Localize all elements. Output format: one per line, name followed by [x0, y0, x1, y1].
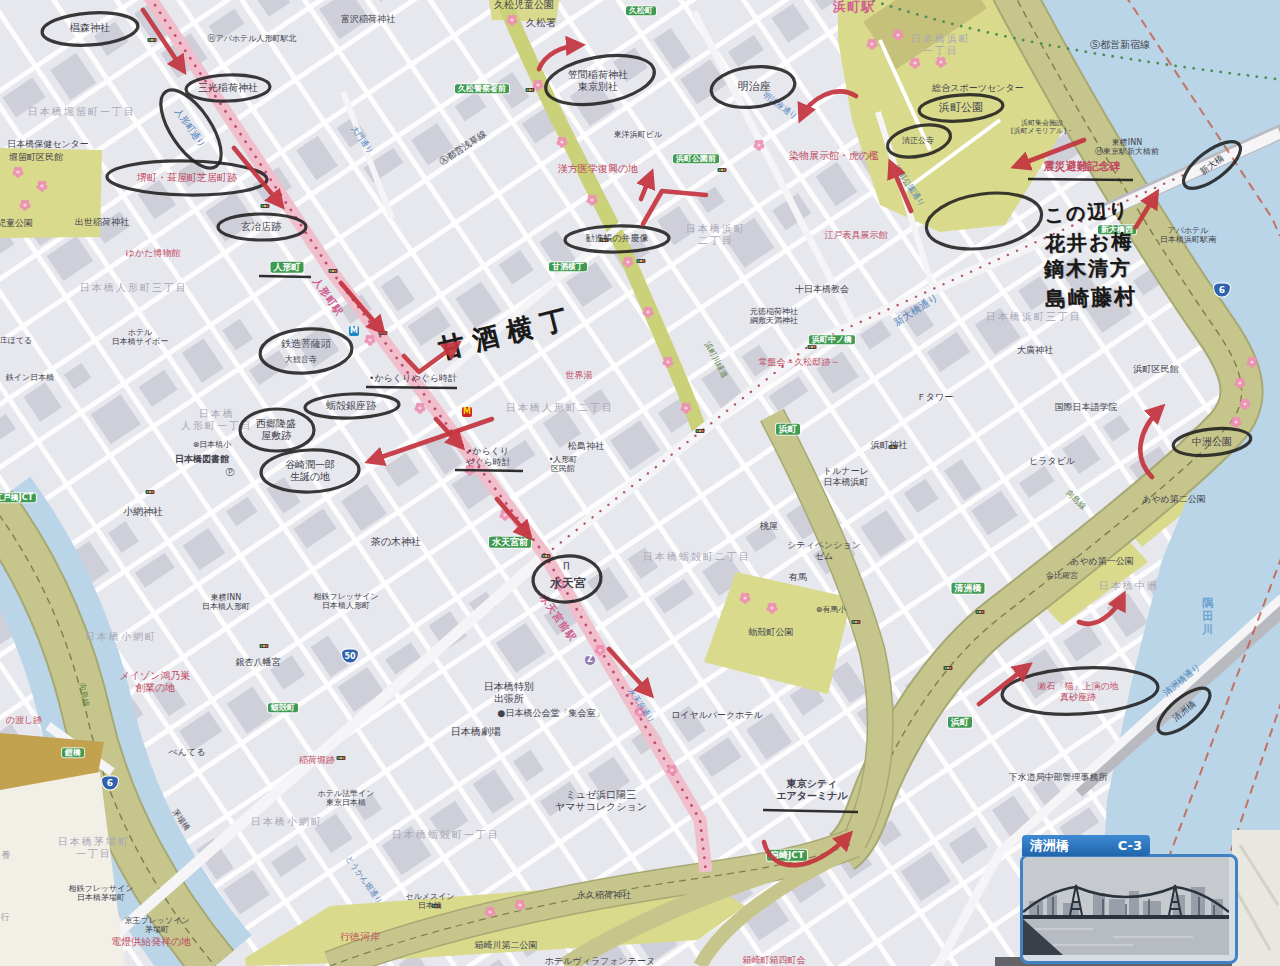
flower-center — [368, 338, 371, 341]
yellow-light — [947, 667, 949, 669]
flower-center — [16, 170, 19, 173]
flower-center — [684, 406, 687, 409]
flower-center — [558, 583, 561, 586]
green-light — [543, 555, 545, 557]
yellow-light — [435, 905, 437, 907]
yellow-light — [263, 645, 265, 647]
scanned-tourist-map: 椙森神社三光稲荷神社Ⓗアパホテル人形町駅北日本橋保健センター堀留町区民館出世稲荷… — [0, 0, 1280, 966]
traffic-light-icon — [148, 38, 157, 42]
red-light — [265, 645, 267, 647]
green-light — [527, 89, 529, 91]
red-light — [498, 537, 500, 539]
red-light — [151, 491, 153, 493]
flower-center — [870, 42, 873, 45]
yellow-light — [529, 89, 531, 91]
traffic-light-icon — [637, 259, 646, 263]
traffic-light-icon — [146, 490, 155, 494]
traffic-light-icon — [526, 88, 535, 92]
traffic-light-icon — [261, 204, 270, 208]
traffic-light-icon — [493, 536, 502, 540]
flower-center — [598, 648, 601, 651]
yellow-light — [811, 346, 813, 348]
inset-title: 清洲橋 — [1030, 837, 1069, 855]
flower-center — [488, 910, 491, 913]
flower-center — [468, 468, 471, 471]
green-light — [262, 205, 264, 207]
red-light — [437, 905, 439, 907]
red-light — [949, 667, 951, 669]
traffic-light-icon — [542, 554, 551, 558]
green-light — [638, 260, 640, 262]
flower-center — [638, 710, 641, 713]
traffic-light-icon — [432, 904, 441, 908]
traffic-light-icon — [718, 168, 727, 172]
traffic-light-icon — [260, 644, 269, 648]
red-light — [857, 621, 859, 623]
flower-center — [939, 60, 942, 63]
yellow-light — [979, 611, 981, 613]
green-light — [380, 332, 382, 334]
traffic-light-icon — [808, 345, 817, 349]
traffic-light-icon — [600, 238, 609, 242]
traffic-light-icon — [889, 445, 898, 449]
yellow-light — [382, 332, 384, 334]
flower-center — [503, 513, 506, 516]
green-light — [330, 270, 332, 272]
red-light — [153, 39, 155, 41]
flower-center — [560, 140, 563, 143]
traffic-light-icon — [944, 666, 953, 670]
flower-center — [626, 260, 629, 263]
green-light — [719, 169, 721, 171]
flower-center — [1234, 420, 1237, 423]
yellow-light — [545, 555, 547, 557]
red-light — [334, 270, 336, 272]
red-light — [723, 169, 725, 171]
green-light — [433, 905, 435, 907]
red-light — [342, 757, 344, 759]
flower-center — [518, 903, 521, 906]
traffic-light-icon — [379, 331, 388, 335]
flower-center — [418, 406, 421, 409]
flower-center — [1243, 402, 1246, 405]
flower-center — [590, 198, 593, 201]
flower-center — [646, 310, 649, 313]
green-light — [890, 446, 892, 448]
flower-center — [670, 768, 673, 771]
green-light — [338, 757, 340, 759]
red-light — [547, 555, 549, 557]
red-light — [531, 89, 533, 91]
flower-center — [666, 360, 669, 363]
flower-center — [536, 83, 539, 86]
flower-center — [510, 18, 513, 21]
yellow-light — [340, 757, 342, 759]
inset-photo-card — [1020, 854, 1238, 964]
green-light — [977, 611, 979, 613]
map-base-layer — [0, 0, 1280, 966]
yellow-light — [151, 39, 153, 41]
yellow-light — [149, 491, 151, 493]
inset-title-bar: 清洲橋 C-3 — [1022, 835, 1150, 856]
red-light — [384, 332, 386, 334]
traffic-light-icon — [852, 620, 861, 624]
yellow-light — [640, 260, 642, 262]
yellow-light — [699, 430, 701, 432]
traffic-light-icon — [696, 429, 705, 433]
yellow-light — [496, 537, 498, 539]
traffic-light-icon — [329, 269, 338, 273]
green-light — [697, 430, 699, 432]
flower-center — [1238, 381, 1241, 384]
flower-center — [1250, 360, 1253, 363]
yellow-light — [892, 446, 894, 448]
flower-center — [757, 143, 760, 146]
flower-center — [23, 203, 26, 206]
red-light — [701, 430, 703, 432]
red-light — [894, 446, 896, 448]
yellow-light — [721, 169, 723, 171]
red-light — [642, 260, 644, 262]
traffic-light-icon — [337, 756, 346, 760]
green-light — [494, 537, 496, 539]
yellow-light — [264, 205, 266, 207]
traffic-light-icon — [976, 610, 985, 614]
green-light — [601, 239, 603, 241]
red-light — [981, 611, 983, 613]
green-light — [853, 621, 855, 623]
green-light — [149, 39, 151, 41]
yellow-light — [603, 239, 605, 241]
green-light — [945, 667, 947, 669]
inset-map-code: C-3 — [1118, 838, 1142, 853]
kiyosu-bridge-photo — [1023, 857, 1229, 955]
flower-center — [770, 606, 773, 609]
green-light — [809, 346, 811, 348]
yellow-light — [855, 621, 857, 623]
red-light — [813, 346, 815, 348]
flower-center — [896, 33, 899, 36]
red-light — [266, 205, 268, 207]
yellow-light — [332, 270, 334, 272]
green-light — [261, 645, 263, 647]
flower-center — [743, 596, 746, 599]
horidome-childrens-park-area — [0, 148, 102, 238]
flower-center — [913, 61, 916, 64]
red-light — [605, 239, 607, 241]
flower-center — [40, 184, 43, 187]
green-light — [147, 491, 149, 493]
